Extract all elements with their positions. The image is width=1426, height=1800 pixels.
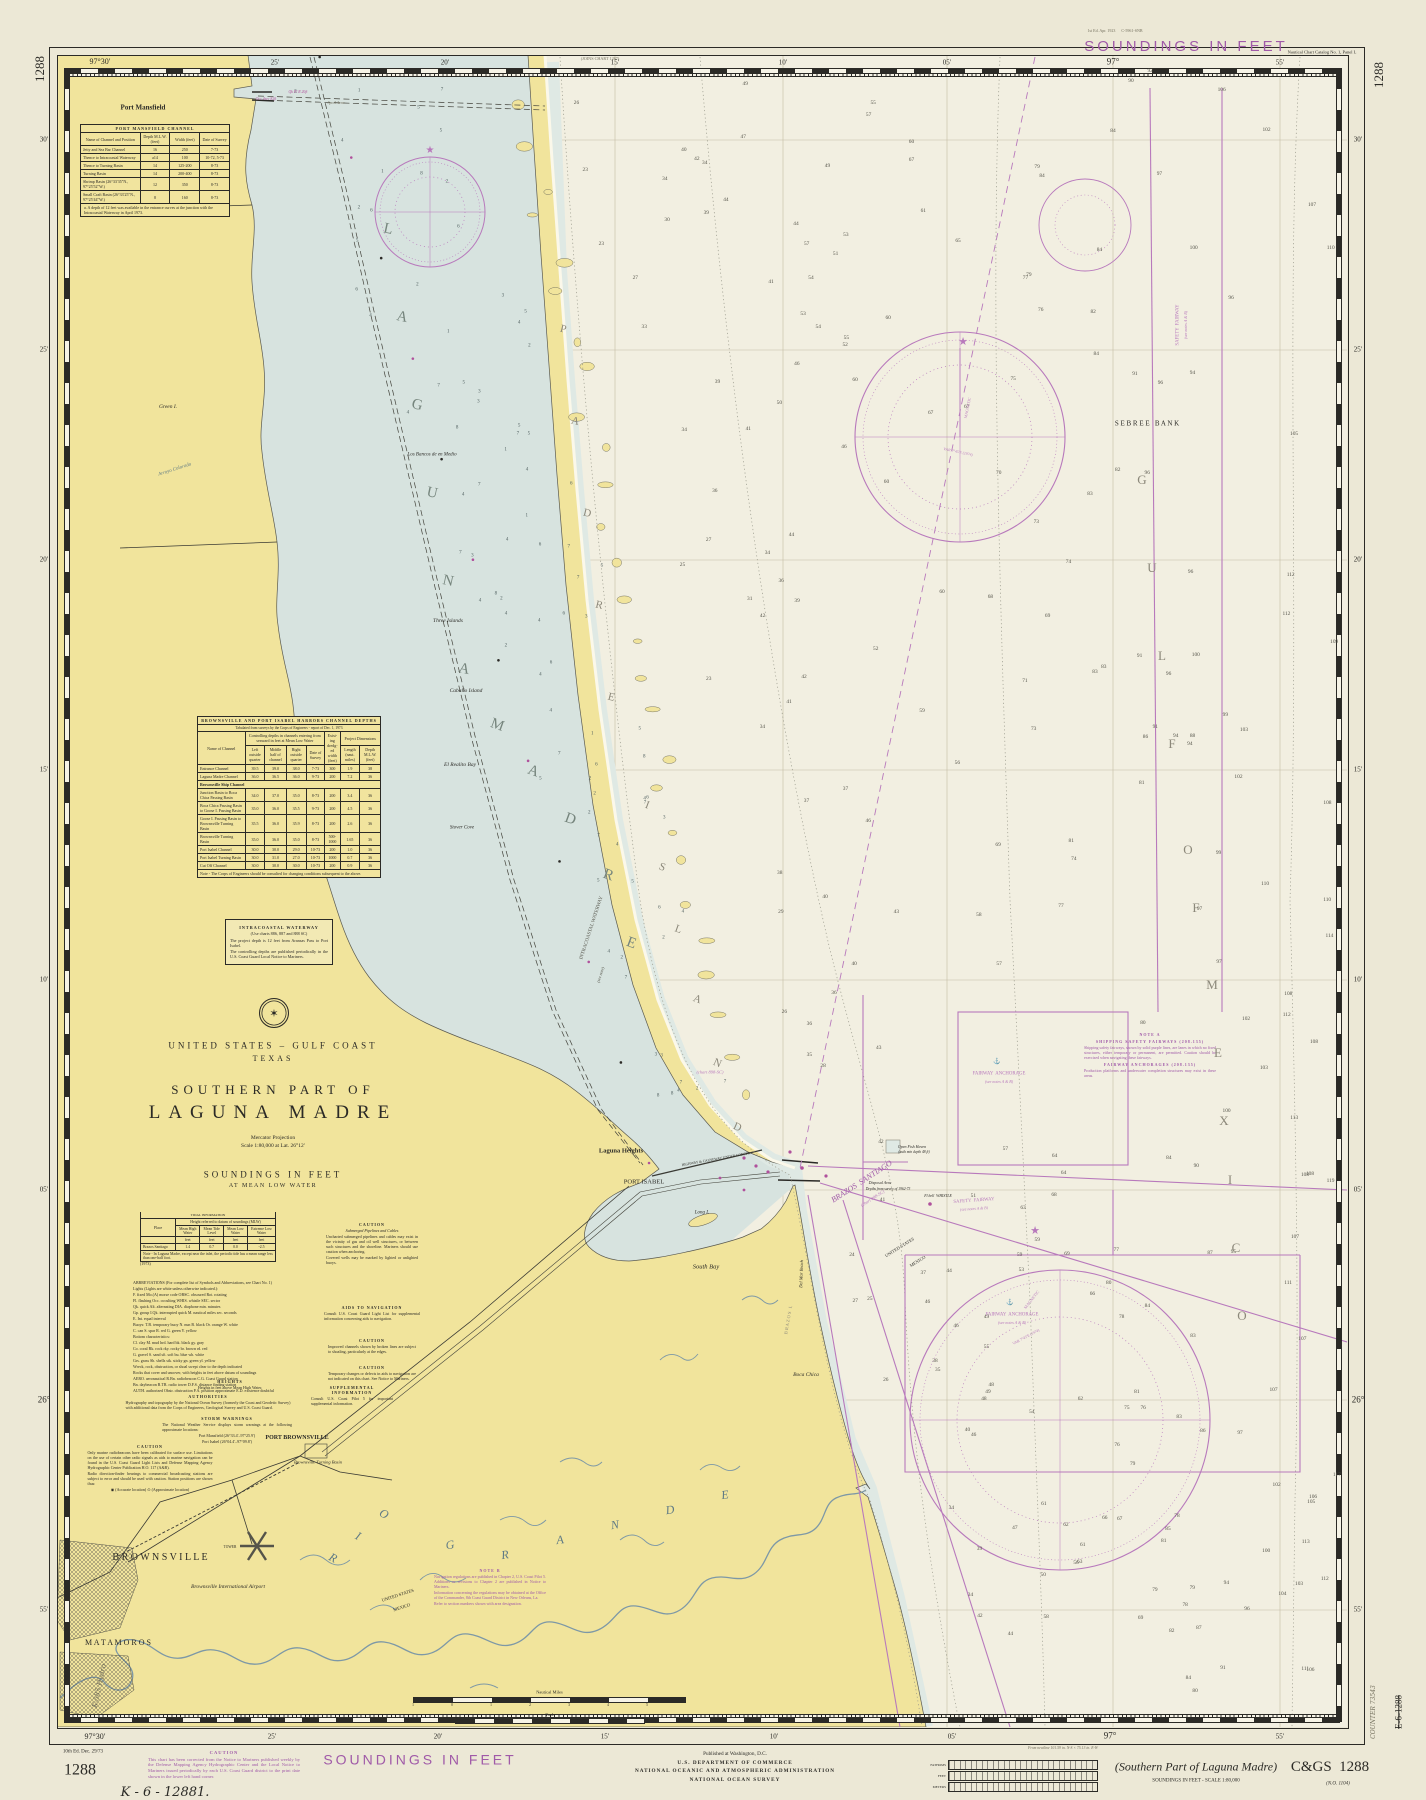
cgs-number: C&GS 1288	[1291, 1760, 1369, 1776]
buoy-symbol	[648, 1162, 651, 1165]
bv-row: Entrance Channel39.539.038.07-733001.938	[198, 765, 381, 773]
sounding: 85	[1165, 1526, 1170, 1532]
yd-scale-label: Yards	[545, 1713, 555, 1717]
buoy-symbol	[587, 961, 590, 964]
abbreviations-line: Wreck, rock, obstruction, or shoal swept…	[133, 1364, 293, 1369]
paren-sub: SOUNDINGS IN FEET - SCALE 1:80,000	[1152, 1778, 1239, 1783]
label-brownsville-basin: Brownsville Turning Basin	[294, 1461, 342, 1466]
anchor-icon-2: ⚓	[1006, 1300, 1013, 1306]
label-long-i: Long I.	[695, 1210, 709, 1215]
sounding: 90	[1128, 78, 1133, 84]
label-boca-chica: Boca Chica	[793, 1373, 819, 1379]
sounding: 78	[1174, 1513, 1179, 1519]
heights-note-line: HEIGHTS	[165, 1379, 295, 1384]
sounding: 5	[356, 238, 359, 243]
heights-note-line: Heights in feet above Mean High Water.	[165, 1385, 295, 1390]
sounding: 67	[1117, 1516, 1122, 1522]
sounding: 1	[525, 514, 528, 519]
abbreviations-line: Grs. grass Sh. shells stk. sticky gn. gr…	[133, 1358, 293, 1363]
sounding: 78	[1119, 1314, 1124, 1320]
sounding: 24	[849, 1252, 854, 1258]
islet	[635, 676, 646, 682]
commerce-seal-icon: ✶	[259, 998, 289, 1028]
islet	[516, 142, 532, 151]
sounding: 84	[1097, 247, 1102, 253]
sounding: 96	[1228, 295, 1233, 301]
sounding: 28	[820, 1063, 825, 1069]
caution-temporary-changes-line: CAUTION	[328, 1365, 416, 1370]
sounding: 39	[715, 379, 720, 385]
heights-note: HEIGHTSHeights in feet above Mean High W…	[165, 1377, 295, 1391]
sounding: 48	[981, 1396, 986, 1402]
sounding: 81	[1069, 838, 1074, 844]
label-spoil-area: Spoil Area	[328, 101, 345, 105]
sounding: 91	[1153, 724, 1158, 730]
sounding: 4	[505, 612, 508, 617]
pm-col: Date of Survey	[200, 133, 230, 146]
sounding: 4	[549, 708, 552, 713]
sounding: 60	[884, 479, 889, 485]
pm-row: Turning Basin14200-4008-73	[81, 170, 230, 178]
aids-to-navigation-line: AIDS TO NAVIGATION	[324, 1305, 420, 1310]
pm-col: Width (feet)	[170, 133, 200, 146]
sounding: 42	[760, 613, 765, 619]
sounding: 63	[1020, 1205, 1025, 1211]
bottom-caution-line: CAUTION	[148, 1750, 300, 1756]
sounding: 41	[786, 699, 791, 705]
lat-left-25: 25′	[40, 346, 49, 353]
abbreviations-line: Rocks that cover and uncover, with heigh…	[133, 1370, 293, 1375]
chart-number-top-left: 1288	[33, 56, 47, 82]
note-b-line: Navigation regulations are published in …	[434, 1574, 546, 1589]
sounding: 75	[1010, 376, 1015, 382]
sounding: 5	[518, 423, 521, 428]
label-three-islands: Three Islands	[433, 619, 463, 625]
yards-scalebar: Yards	[455, 1712, 645, 1724]
lon-bot-97: 97°	[1104, 1731, 1117, 1740]
sounding: 38	[777, 870, 782, 876]
course-line	[800, 57, 1035, 1168]
sounding: 62	[1063, 1522, 1068, 1528]
letter-mexico-x: X	[1219, 1114, 1228, 1128]
title-part: SOUTHERN PART OF	[171, 1083, 374, 1097]
sounding: 84	[1039, 173, 1044, 179]
pm-col: Depth M.L.W. (feet)	[140, 133, 170, 146]
sounding: 8	[495, 592, 498, 597]
sounding: 87	[1196, 1625, 1201, 1631]
pm-table-title: PORT MANSFIELD CHANNEL	[81, 125, 230, 133]
title-projection: Mercator Projection	[251, 1136, 295, 1142]
aids-to-navigation: AIDS TO NAVIGATIONConsult U.S. Coast Gua…	[324, 1303, 420, 1322]
sounding: 79	[1190, 1585, 1195, 1591]
buoy-symbol	[527, 760, 530, 763]
sounding: 102	[1242, 1016, 1250, 1022]
bv-proj-col: Length (naut. miles)	[340, 745, 360, 764]
note-b-line: Information concerning the regulations m…	[434, 1590, 546, 1600]
sounding: 100	[1190, 245, 1198, 251]
sounding: 110	[1261, 881, 1269, 887]
sounding: 75	[1124, 1405, 1129, 1411]
bv-ctl-col: Right outside quarter	[286, 745, 306, 764]
sounding: 112	[1283, 1012, 1291, 1018]
abbreviations-line: ABBREVIATIONS (For complete list of Symb…	[133, 1280, 293, 1285]
sounding: 42	[801, 674, 806, 680]
sounding: 3	[477, 400, 480, 405]
nm-tick: 1	[412, 1703, 414, 1707]
publication-block: Published at Washington, D.C.U.S. DEPART…	[628, 1750, 843, 1784]
sounding: 34	[682, 427, 687, 433]
sounding: 92	[1147, 68, 1152, 74]
sounding: 59	[1017, 1252, 1022, 1258]
intracoastal-note-line: The project depth is 12 feet from Aransa…	[230, 938, 328, 949]
nautical-miles-scalebar: Nautical Miles 1012345	[413, 1690, 686, 1708]
label-fairway-anch-2b: (see notes A & B)	[998, 1321, 1026, 1325]
tide-col: Mean Tide Level	[200, 1226, 224, 1237]
sounding: 57	[996, 961, 1001, 967]
storm-warnings-line: STORM WARNINGS	[162, 1416, 292, 1421]
authorities-note-line: Hydrography and topography by the Nation…	[126, 1400, 291, 1410]
sounding: 64	[1052, 1153, 1057, 1159]
sounding: 7	[568, 544, 571, 549]
sounding: 5	[597, 879, 600, 884]
label-brownsville: B R O W N S V I L L E	[112, 1553, 207, 1564]
conversion-row: METERS	[920, 1782, 1098, 1792]
caution-radiobeacons-line: ◉ (Accurate location) ⊙ (Approximate loc…	[88, 1487, 213, 1492]
sounding: 94	[1224, 1580, 1229, 1586]
sounding: 56	[955, 760, 960, 766]
islet	[676, 856, 685, 865]
sounding: 7	[558, 751, 561, 756]
lat-right-10: 10′	[1354, 976, 1363, 983]
sounding: 2	[358, 206, 361, 211]
sounding: 56	[1073, 1560, 1078, 1566]
bv-row: Port Isabel Channel30.030.029.010-732001…	[198, 846, 381, 854]
sounding: 33	[642, 324, 647, 330]
sounding: 49	[825, 163, 830, 169]
bv-group-row: Brownsville Ship Channel	[198, 781, 381, 789]
intracoastal-note-line: INTRACOASTAL WATERWAY	[230, 925, 328, 930]
caution-pipelines-line: Uncharted submerged pipelines and cables…	[326, 1234, 418, 1254]
sounding: 57	[804, 241, 809, 247]
tide-place-col: Place	[141, 1219, 176, 1237]
abbreviations-line: Lights (Lights are white unless otherwis…	[133, 1286, 293, 1291]
sounding: 23	[583, 167, 588, 173]
sounding: 108	[1323, 800, 1331, 806]
intracoastal-note-line: (Use charts 886, 887 and 888 SC)	[230, 931, 328, 936]
sounding: 34	[765, 550, 770, 556]
note-a-line: NOTE A	[1084, 1032, 1216, 1037]
lat-right-55: 55′	[1354, 1606, 1363, 1613]
sounding: 82	[1115, 467, 1120, 473]
sounding: 36	[778, 578, 783, 584]
islet	[698, 971, 715, 979]
islet	[556, 258, 573, 267]
conversion-scale: FATHOMS FEET METERS	[920, 1760, 1098, 1793]
conversion-row-label: FEET	[920, 1774, 948, 1778]
bv-width-col: Exist-ing dredg-ed width (feet)	[325, 732, 340, 765]
sounding: 111	[1301, 1666, 1309, 1672]
sounding: 27	[706, 537, 711, 543]
sounding: 6	[457, 225, 460, 230]
buoy-symbol	[350, 156, 353, 159]
lon-bot-55: 55′	[1276, 1733, 1285, 1740]
no-number: (N.O. 1104)	[1326, 1781, 1350, 1786]
sounding: 29	[778, 909, 783, 915]
nm-tick: 1	[490, 1703, 492, 1707]
sounding: 5	[601, 563, 604, 568]
label-intl-airport: Brownsville International Airport	[191, 1585, 265, 1591]
sounding: 59	[919, 708, 924, 714]
caution-pipelines: CAUTIONSubmerged Pipelines and CablesUnc…	[326, 1220, 418, 1266]
islet	[580, 362, 595, 370]
letter-grande-a: A	[555, 1533, 564, 1546]
sounding: 4	[616, 842, 619, 847]
sounding: 46	[925, 1299, 930, 1305]
sounding: 23	[599, 241, 604, 247]
sounding: 5	[539, 777, 542, 782]
sounding: 2	[589, 777, 592, 782]
sounding: 4	[677, 1089, 680, 1094]
sounding: 3	[585, 614, 588, 619]
sounding: 54	[816, 324, 821, 330]
sounding: 31	[747, 596, 752, 602]
buoy-symbol	[558, 860, 561, 863]
sounding: 1	[504, 447, 507, 452]
sounding: 2	[588, 810, 591, 815]
nm-tick: 0	[451, 1703, 453, 1707]
sounding: 49	[985, 1389, 990, 1395]
sounding: 76	[1114, 1442, 1119, 1448]
sounding: 7	[441, 87, 444, 92]
sounding: 5	[528, 432, 531, 437]
sounding: 3	[655, 1053, 658, 1058]
label-fairway-anch-2: FAIRWAY ANCHORAGE	[986, 1312, 1039, 1317]
sounding: 88	[1190, 733, 1195, 739]
sounding: 47	[1012, 1525, 1017, 1531]
sounding: 46	[841, 444, 846, 450]
sounding: 34	[968, 1592, 973, 1598]
sounding: 5	[417, 105, 420, 110]
bottom-caution-line: This chart has been corrected from the N…	[148, 1757, 300, 1780]
sounding: 7	[437, 384, 440, 389]
sounding: 97	[1216, 959, 1221, 965]
islet	[598, 482, 613, 488]
sounding: 58	[976, 912, 981, 918]
title-datum: AT MEAN LOW WATER	[229, 1183, 317, 1189]
pm-col: Name of Channel and Position	[81, 133, 141, 146]
sounding: 67	[909, 157, 914, 163]
sounding: 86	[1143, 734, 1148, 740]
lon-top-05: 05′	[943, 59, 952, 66]
sounding: 113	[1290, 1115, 1298, 1121]
sounding: 55	[984, 1344, 989, 1350]
islet	[597, 524, 605, 531]
lat-right-05: 05′	[1354, 1186, 1363, 1193]
bv-row: Laguna Madre Channel36.036.536.09-732007…	[198, 773, 381, 781]
sounding: 84	[1145, 1303, 1150, 1309]
sounding: 110	[1323, 897, 1331, 903]
bottom-caution: CAUTIONThis chart has been corrected fro…	[148, 1748, 300, 1781]
islet	[544, 189, 553, 194]
sounding: 80	[1106, 1280, 1111, 1286]
tide-col: Mean Low Water	[223, 1226, 247, 1237]
sounding: 50	[777, 400, 782, 406]
sounding: 34	[949, 1505, 954, 1511]
sounding: 4	[407, 411, 410, 416]
islet	[527, 213, 538, 217]
safety-fairway-lines	[808, 88, 1347, 1727]
chart-number-top-right: 1288	[1372, 62, 1386, 88]
sounding: 4	[526, 467, 529, 472]
label-caballo-island: Caballo Island	[450, 689, 483, 695]
sounding: 4	[608, 950, 611, 955]
sounding: 41	[746, 426, 751, 432]
sounding: 2	[416, 283, 419, 288]
sounding: 2	[662, 935, 665, 940]
sounding: 23	[706, 676, 711, 682]
nm-scale-label: Nautical Miles	[536, 1691, 563, 1696]
buoy-symbol	[318, 56, 321, 59]
sounding: 107	[1269, 1387, 1277, 1393]
sounding: 94	[1190, 370, 1195, 376]
bv-table-title: BROWNSVILLE AND PORT ISABEL HARBORS CHAN…	[198, 717, 381, 725]
label-fish-haven-depth: (auth min depth 48 ft)	[898, 1151, 929, 1155]
bv-name-col: Name of Channel	[198, 732, 246, 765]
sounding: 8	[657, 1094, 660, 1099]
sounding: 5	[462, 380, 465, 385]
title-country: UNITED STATES – GULF COAST	[168, 1041, 377, 1050]
sounding: 53	[800, 311, 805, 317]
label-port-brownsville: PORT BROWNSVILLE	[265, 1435, 328, 1441]
sounding: 4	[539, 672, 542, 677]
sounding: 4	[462, 493, 465, 498]
bv-row: Port Isabel Turning Basin30.031.027.010-…	[198, 854, 381, 862]
sounding: 7	[625, 975, 628, 980]
handwritten-k6: K - 6 - 12881.	[121, 1786, 210, 1800]
sounding: 60	[939, 589, 944, 595]
letter-of-f: F	[1192, 901, 1199, 915]
lon-top-25: 25′	[271, 59, 280, 66]
note-a-line: SHIPPING SAFETY FAIRWAYS (208.135)	[1084, 1039, 1216, 1044]
sounding: 80	[1192, 1688, 1197, 1694]
lat-left-10: 10′	[40, 976, 49, 983]
sounding: 7	[680, 1080, 683, 1085]
sounding: 66	[1102, 1515, 1107, 1521]
sounding: 40	[965, 1427, 970, 1433]
letter-of-o: O	[1183, 843, 1192, 857]
sounding: 5	[524, 310, 527, 315]
note-a: NOTE ASHIPPING SAFETY FAIRWAYS (208.135)…	[1084, 1030, 1216, 1079]
sounding: 55	[870, 100, 875, 106]
sounding: 46	[794, 361, 799, 367]
sounding: 60	[885, 315, 890, 321]
caution-temporary-changes: CAUTIONTemporary changes or defects in a…	[328, 1363, 416, 1382]
label-disposal-area: Disposal Area	[869, 1181, 892, 1185]
lat-left-15: 15′	[40, 766, 49, 773]
sounding: 3	[660, 1053, 663, 1058]
intracoastal-note-line: The controlling depths are published per…	[230, 949, 328, 960]
sounding: 83	[1092, 669, 1097, 675]
sounding: 68	[988, 594, 993, 600]
star-icon-rose1: ★	[426, 146, 435, 157]
note-a-line: Shipping safety fairways, shown by solid…	[1084, 1045, 1216, 1060]
sounding: 73	[1034, 519, 1039, 525]
sounding: 44	[1008, 1631, 1013, 1637]
sounding: 91	[1137, 653, 1142, 659]
note-b-line: NOTE B	[434, 1568, 546, 1573]
sounding: 81	[1134, 1389, 1139, 1395]
sounding: 71	[1022, 678, 1027, 684]
sounding: 42	[977, 1613, 982, 1619]
caution-temporary-changes-line: Temporary changes or defects in aids to …	[328, 1371, 416, 1381]
authorities-note: AUTHORITIESHydrography and topography by…	[126, 1392, 291, 1411]
border-ticks-left	[64, 68, 70, 1722]
edition-note: 10th Ed. Dec. 29/73	[63, 1749, 103, 1754]
sounding: 70	[996, 470, 1001, 476]
sounding: 103	[1260, 1065, 1268, 1071]
conversion-row-label: METERS	[920, 1785, 948, 1789]
tide-col: Extreme Low Water	[247, 1226, 275, 1237]
bv-row: Junction Basin to Boca Chica Passing Bas…	[198, 789, 381, 802]
sounding: 51	[833, 251, 838, 257]
sounding: 79	[1130, 1461, 1135, 1467]
label-matamoros: M A T A M O R O S	[85, 1639, 151, 1647]
conversion-row-label: FATHOMS	[920, 1763, 948, 1767]
bv-ctl-col: Left outside quarter	[245, 745, 265, 764]
label-los-bancos: Los Bancos de en Medio	[407, 452, 456, 457]
sounding: 74	[1066, 559, 1071, 565]
sounding: 54	[808, 275, 813, 281]
sounding: 99	[1223, 712, 1228, 718]
bv-row: Goose I. Passing Basin to Brownsville Tu…	[198, 815, 381, 833]
sounding: 84	[1166, 1155, 1171, 1161]
caution-radiobeacons-line: Only marine radiobeacons have been calib…	[88, 1450, 213, 1470]
sounding: 6	[370, 209, 373, 214]
sounding: 79	[1152, 1587, 1157, 1593]
bv-proj-header: Project Dimensions	[340, 732, 380, 746]
sounding: 112	[1321, 1576, 1329, 1582]
intracoastal-note: INTRACOASTAL WATERWAY(Use charts 886, 88…	[225, 919, 333, 965]
bv-proj-col: Depth M.L.W. (feet)	[360, 745, 381, 764]
sounding: 106	[1309, 1494, 1317, 1500]
sounding: 108	[1310, 1039, 1318, 1045]
abbreviations-line: F. fixed Mo.(A) morse code OBSC. obscure…	[133, 1292, 293, 1297]
light-pm-2: Occ 4sec 82ft	[256, 97, 277, 101]
sounding: 36	[807, 1021, 812, 1027]
sounding: 100	[1192, 652, 1200, 658]
letter-mexico-e: E	[1214, 1046, 1222, 1060]
sounding: 2	[505, 644, 508, 649]
sounding: 102	[1273, 1482, 1281, 1488]
anchor-icon-1: ⚓	[993, 1059, 1000, 1065]
sounding: 66	[1090, 1291, 1095, 1297]
sounding: 53	[843, 232, 848, 238]
tide-row: Brazos Santiago1.40.70.0-2.5	[141, 1244, 276, 1251]
sounding: 58	[1043, 1614, 1048, 1620]
sounding: 35	[807, 1052, 812, 1058]
abbreviations-line: Qk. quick Alt. alternating DIA. diaphone…	[133, 1304, 293, 1309]
label-tower: TOWER	[224, 1546, 237, 1550]
handwritten-counter: COUNTER 73543	[1371, 1685, 1377, 1739]
islet	[680, 901, 690, 908]
caution-improved-channels: CAUTIONImproved channels shown by broken…	[328, 1336, 416, 1355]
sounding: 39	[977, 1546, 982, 1552]
sounding: 4	[479, 599, 482, 604]
lat-right-26: 26°	[1352, 1395, 1365, 1404]
islet	[742, 1090, 749, 1100]
sounding: 4	[341, 139, 344, 144]
lon-bot-05: 05′	[948, 1733, 957, 1740]
